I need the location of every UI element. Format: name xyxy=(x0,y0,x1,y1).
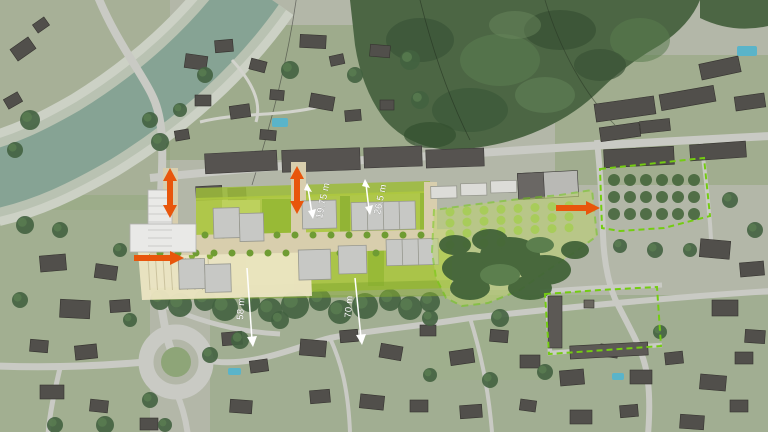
street-tree xyxy=(274,232,281,239)
tree-highlight xyxy=(199,69,207,77)
house xyxy=(89,399,108,413)
park-tree xyxy=(565,223,574,232)
tree-highlight xyxy=(402,52,412,62)
house xyxy=(229,104,251,120)
orchard-tree xyxy=(656,174,668,186)
tree-highlight xyxy=(493,311,502,320)
measure-70-label: 70 m xyxy=(343,295,356,318)
house xyxy=(699,374,726,391)
house xyxy=(299,339,326,357)
tree-highlight xyxy=(539,366,547,374)
orchard-tree xyxy=(608,191,620,203)
house xyxy=(739,261,764,277)
tree-highlight xyxy=(724,194,732,202)
street-tree xyxy=(292,232,299,239)
tree-highlight xyxy=(233,333,242,342)
street-tree xyxy=(373,250,380,257)
house xyxy=(195,95,211,106)
street-tree xyxy=(382,232,389,239)
house xyxy=(449,348,475,365)
tree-highlight xyxy=(159,419,166,426)
house xyxy=(174,129,190,141)
tree-highlight xyxy=(153,135,162,144)
tree-highlight xyxy=(400,298,412,310)
street-tree xyxy=(202,232,209,239)
orchard-tree xyxy=(688,208,700,220)
house xyxy=(604,146,675,168)
house xyxy=(548,296,562,348)
park-tree xyxy=(548,213,557,222)
park-tree xyxy=(514,215,523,224)
house xyxy=(664,351,683,365)
tree-highlight xyxy=(684,244,691,251)
tree-highlight xyxy=(260,300,272,312)
park-tree xyxy=(463,207,472,216)
house xyxy=(730,400,748,412)
pool xyxy=(272,118,288,127)
tree-highlight xyxy=(330,302,342,314)
house xyxy=(630,370,652,384)
street-tree xyxy=(283,250,290,257)
tree-highlight xyxy=(54,224,62,232)
house xyxy=(380,100,394,110)
measure-58-label: 58 m xyxy=(235,297,248,320)
orchard-tree xyxy=(640,191,652,203)
tree-highlight xyxy=(649,244,657,252)
park-tree xyxy=(548,202,557,211)
orchard-tree xyxy=(640,174,652,186)
orchard-tree xyxy=(672,208,684,220)
house xyxy=(359,394,384,410)
house xyxy=(30,339,49,353)
house xyxy=(699,239,730,260)
orchard-tree xyxy=(624,174,636,186)
orchard-tree xyxy=(640,208,652,220)
tree-highlight xyxy=(49,419,57,427)
house xyxy=(230,399,253,414)
tree-highlight xyxy=(14,294,22,302)
tree-highlight xyxy=(349,69,357,77)
tree-highlight xyxy=(749,224,757,232)
orchard-tree xyxy=(624,191,636,203)
pool xyxy=(612,373,624,380)
house xyxy=(39,254,66,272)
house xyxy=(584,300,594,308)
house xyxy=(340,329,359,343)
orchard-tree xyxy=(624,208,636,220)
tree-highlight xyxy=(424,369,431,376)
street-tree xyxy=(400,232,407,239)
street-tree xyxy=(364,232,371,239)
tree-highlight xyxy=(9,144,17,152)
street-tree xyxy=(346,232,353,239)
street-tree xyxy=(265,250,272,257)
house xyxy=(420,325,436,336)
pool xyxy=(737,46,757,56)
park-tree xyxy=(514,204,523,213)
house xyxy=(490,329,509,343)
aerial-masterplan-map: 19.75 m 26.5 m 58 m 70 m xyxy=(0,0,768,432)
tree-highlight xyxy=(144,114,152,122)
house xyxy=(74,344,97,360)
house xyxy=(460,404,483,419)
orchard-tree xyxy=(672,191,684,203)
tree-highlight xyxy=(424,312,432,320)
street-tree xyxy=(310,232,317,239)
park-tree xyxy=(497,216,506,225)
park-tree xyxy=(463,218,472,227)
house xyxy=(300,34,327,48)
orchard-tree xyxy=(688,191,700,203)
house xyxy=(110,299,131,312)
house xyxy=(370,44,391,58)
park-tree xyxy=(480,206,489,215)
house xyxy=(60,299,91,319)
house xyxy=(309,389,330,404)
tree-highlight xyxy=(22,112,32,122)
park-tree xyxy=(497,205,506,214)
tree-highlight xyxy=(124,314,131,321)
tree-highlight xyxy=(114,244,121,251)
house xyxy=(559,369,584,386)
park-tree xyxy=(565,212,574,221)
tree-highlight xyxy=(144,394,152,402)
house xyxy=(260,129,277,140)
tree-highlight xyxy=(484,374,492,382)
house xyxy=(570,410,592,424)
house xyxy=(270,89,285,100)
tree-highlight xyxy=(204,349,212,357)
tree-highlight xyxy=(614,240,621,247)
house xyxy=(519,399,536,412)
house xyxy=(712,300,738,316)
orchard-tree xyxy=(608,208,620,220)
tree-highlight xyxy=(283,63,292,72)
park-tree xyxy=(480,217,489,226)
tree-highlight xyxy=(215,298,228,311)
house xyxy=(410,400,428,412)
house xyxy=(249,359,268,373)
park-tree xyxy=(446,219,455,228)
house xyxy=(735,352,753,364)
orchard-tree xyxy=(656,191,668,203)
street-tree xyxy=(229,250,236,257)
pool xyxy=(228,368,241,375)
map-canvas: 19.75 m 26.5 m 58 m 70 m xyxy=(0,0,768,432)
park-tree xyxy=(514,226,523,235)
house xyxy=(345,109,362,121)
house xyxy=(94,264,118,281)
tree-highlight xyxy=(413,93,422,102)
house xyxy=(745,329,766,343)
tree-highlight xyxy=(174,104,181,111)
house xyxy=(40,385,64,399)
house xyxy=(620,404,639,418)
orchard-tree xyxy=(688,174,700,186)
orchard-tree xyxy=(608,174,620,186)
house xyxy=(520,355,540,368)
street-tree xyxy=(247,250,254,257)
park-tree xyxy=(531,203,540,212)
tree-highlight xyxy=(273,313,282,322)
house xyxy=(680,414,705,430)
park-tree xyxy=(446,208,455,217)
park-tree xyxy=(531,214,540,223)
park-tree xyxy=(531,225,540,234)
house xyxy=(140,418,158,430)
street-tree xyxy=(211,250,218,257)
street-tree xyxy=(418,232,425,239)
street-tree xyxy=(328,232,335,239)
tree-highlight xyxy=(18,218,27,227)
orchard-tree xyxy=(672,174,684,186)
orchard-tree xyxy=(656,208,668,220)
park-tree xyxy=(548,224,557,233)
house xyxy=(215,39,234,53)
park-tree xyxy=(463,229,472,238)
tree-highlight xyxy=(98,418,107,427)
